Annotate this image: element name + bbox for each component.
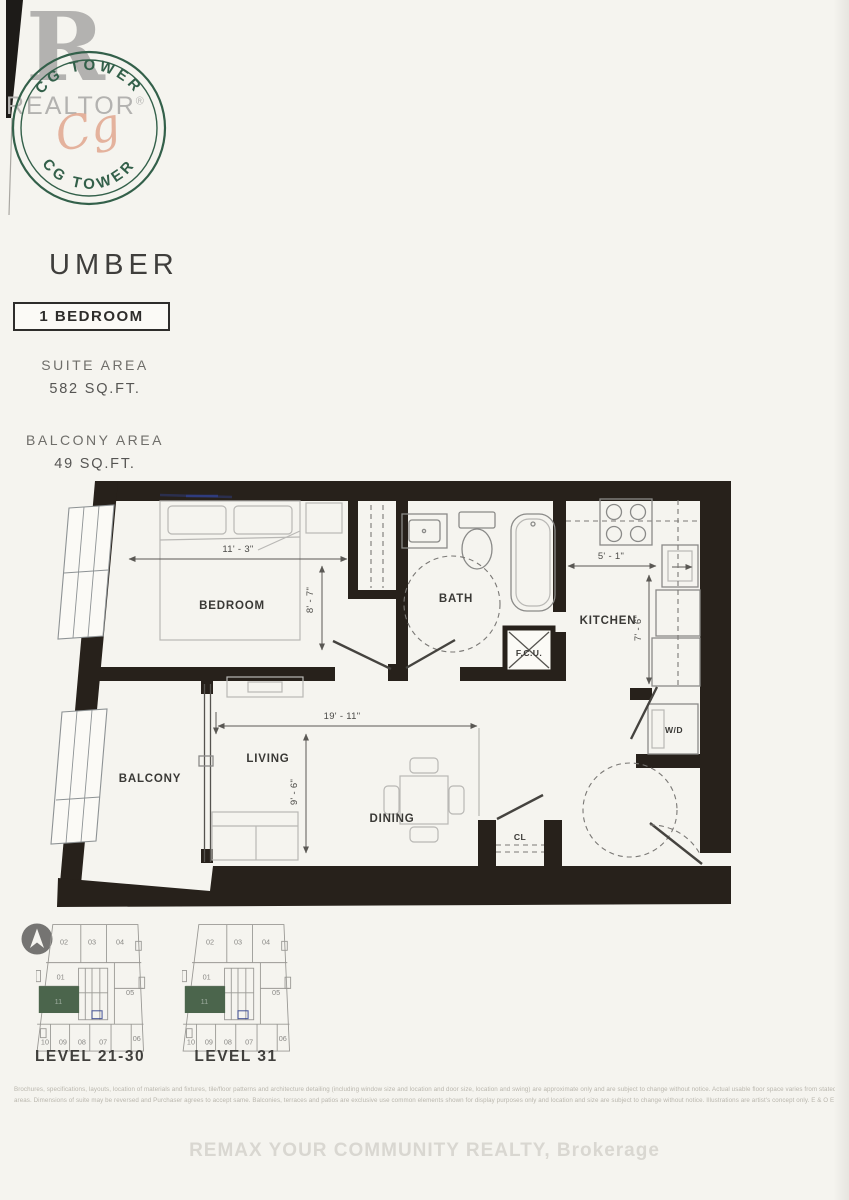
suite-area-block: SUITE AREA 582 SQ.FT. bbox=[10, 357, 180, 397]
dim-bedroom-width: 11' - 3" bbox=[222, 544, 253, 555]
keyplan-highlighted-unit-number: 11 bbox=[201, 997, 209, 1006]
keyplans-section: 0203040105100908070611 LEVEL 21-30 bbox=[0, 915, 849, 1075]
entry-door bbox=[650, 823, 702, 864]
wall-cl-left bbox=[478, 820, 496, 866]
keyplan-unit-number: 08 bbox=[224, 1037, 232, 1046]
toilet-tank bbox=[459, 512, 495, 528]
living-label: LIVING bbox=[246, 753, 289, 765]
balcony-area-block: BALCONY AREA 49 SQ.FT. bbox=[10, 432, 180, 472]
balcony-door bbox=[199, 684, 216, 862]
seal-signature: Cg bbox=[50, 96, 124, 162]
keyplan-unit-number: 10 bbox=[41, 1037, 49, 1046]
wall-closet-left bbox=[348, 500, 358, 597]
unit-type-badge: 1 BEDROOM bbox=[13, 302, 170, 331]
keyplan-unit-number: 05 bbox=[126, 988, 134, 997]
keyplan-unit-number: 03 bbox=[88, 938, 96, 947]
cl-label: CL bbox=[514, 832, 526, 842]
keyplan-unit-number: 02 bbox=[60, 938, 68, 947]
bedroom-closet bbox=[371, 505, 383, 588]
entry-closet bbox=[496, 795, 544, 852]
floor-plan-drawing: 11' - 3" 8' - 7" 19' - 11" 9' - 6" 5' - … bbox=[40, 470, 750, 915]
suite-area-label: SUITE AREA bbox=[10, 357, 180, 373]
wall-balcony-stub-bottom bbox=[201, 849, 213, 863]
wall-closet-bottom bbox=[348, 590, 397, 599]
brokerage-watermark: REMAX YOUR COMMUNITY REALTY, Brokerage bbox=[0, 1140, 849, 1162]
keyplan-unit-number: 05 bbox=[272, 988, 280, 997]
keyplan-unit-number: 02 bbox=[206, 938, 214, 947]
bedroom-door bbox=[333, 641, 391, 669]
disclaimer-line-2: areas. Dimensions of suite may be revers… bbox=[14, 1097, 835, 1104]
foyer-turning-circle bbox=[583, 763, 677, 857]
keyplan-unit-number: 04 bbox=[262, 938, 270, 947]
wall-bottom bbox=[57, 866, 731, 907]
wall-laundry-stub bbox=[630, 688, 652, 700]
scan-pen-mark-keyplan bbox=[238, 1011, 248, 1019]
closet-door bbox=[497, 795, 543, 819]
keyplan-unit-number: 10 bbox=[187, 1037, 195, 1046]
wall-bedroom-living bbox=[79, 667, 335, 681]
wall-balcony-stub-top bbox=[201, 681, 213, 694]
keyplan-unit-number: 07 bbox=[245, 1037, 253, 1046]
bed bbox=[160, 501, 300, 640]
bathtub bbox=[511, 514, 555, 611]
night-table bbox=[306, 503, 342, 533]
kitchen-fixtures bbox=[566, 499, 700, 686]
fcu-label: F.C.U. bbox=[516, 648, 542, 658]
scan-pen-mark-keyplan bbox=[92, 1011, 102, 1019]
dim-living-depth: 9' - 6" bbox=[289, 779, 300, 805]
dim-kitchen-width: 5' - 1" bbox=[598, 551, 624, 562]
keyplan-unit-number: 06 bbox=[133, 1034, 141, 1043]
keyplan-unit-number: 08 bbox=[78, 1037, 86, 1046]
wall-cl-right bbox=[544, 820, 562, 866]
keyplan-unit-number: 06 bbox=[279, 1034, 287, 1043]
living-furniture bbox=[212, 677, 303, 860]
bath-label: BATH bbox=[439, 593, 473, 605]
bedroom-window bbox=[58, 505, 114, 639]
fridge bbox=[652, 638, 700, 686]
keyplan-unit-number: 07 bbox=[99, 1037, 107, 1046]
balcony-label: BALCONY bbox=[119, 773, 181, 785]
keyplan-label: LEVEL 21-30 bbox=[30, 1048, 150, 1066]
keyplan-unit-number: 03 bbox=[234, 938, 242, 947]
keyplan-unit-number: 01 bbox=[203, 972, 211, 981]
bath-door bbox=[406, 640, 455, 668]
dining-label: DINING bbox=[369, 813, 414, 825]
wall-top bbox=[97, 481, 731, 501]
wd-label: W/D bbox=[665, 725, 683, 735]
balcony-area-label: BALCONY AREA bbox=[10, 432, 180, 448]
floor-plan-sheet: R REALTOR® Cg CG TOWER CG TOWER UMBER 1 … bbox=[0, 0, 849, 1200]
keyplan-unit-number: 09 bbox=[205, 1037, 213, 1046]
keyplan-label: LEVEL 31 bbox=[176, 1048, 296, 1066]
disclaimer-line-1: Brochures, specifications, layouts, loca… bbox=[14, 1086, 835, 1093]
keyplan-unit-number: 09 bbox=[59, 1037, 67, 1046]
keyplan-level-31: 0203040105100908070611 bbox=[182, 921, 294, 1058]
page-title: UMBER bbox=[49, 249, 179, 282]
keyplan-highlighted-unit-number: 11 bbox=[55, 997, 63, 1006]
dining-set bbox=[384, 758, 464, 842]
wall-right bbox=[700, 481, 731, 853]
dim-bedroom-depth: 8' - 7" bbox=[305, 587, 316, 613]
keyplan-unit-number: 01 bbox=[57, 972, 65, 981]
balcony-window bbox=[51, 709, 107, 844]
suite-area-value: 582 SQ.FT. bbox=[10, 381, 180, 397]
kitchen-label: KITCHEN bbox=[580, 615, 637, 627]
sofa bbox=[212, 812, 298, 860]
seal-bottom-text: CG TOWER bbox=[39, 156, 140, 193]
bedroom-label: BEDROOM bbox=[199, 600, 265, 612]
keyplan-level-21-30: 0203040105100908070611 bbox=[36, 921, 148, 1058]
seal-bottom-textpath: CG TOWER bbox=[39, 156, 140, 193]
keyplan-unit-number: 04 bbox=[116, 938, 124, 947]
dim-living-width: 19' - 11" bbox=[324, 711, 361, 722]
cg-tower-seal: Cg CG TOWER CG TOWER bbox=[6, 44, 174, 216]
